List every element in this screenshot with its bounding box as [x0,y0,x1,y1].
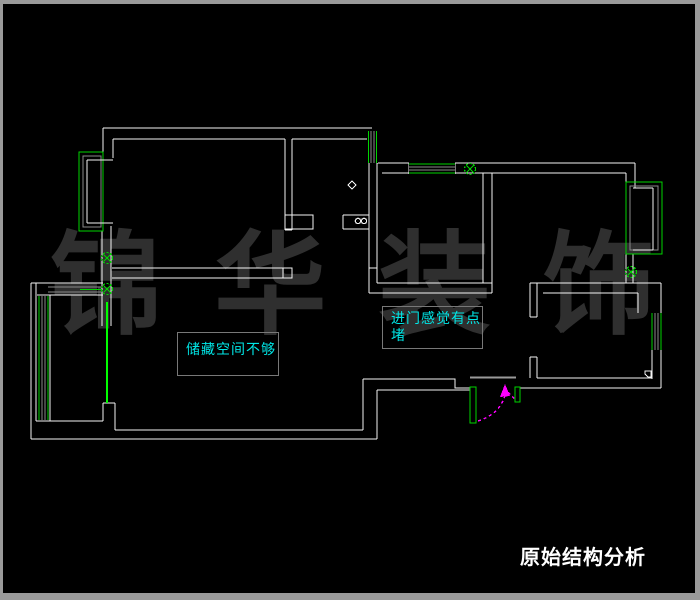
annotation-storage-note: 储藏空间不够 [177,332,279,376]
entry-level-marker-icon [645,371,651,377]
door-swing-arc [478,384,515,421]
annotation-entry-note: 进门感觉有点 堵 [382,306,483,349]
entry-door [470,378,520,424]
annotation-entry-text-line1: 进门感觉有点 [391,310,482,327]
kitchen-top-window [409,162,455,174]
bathroom-transition-window [367,130,378,163]
bay-window-right [626,182,662,254]
annotation-storage-text: 储藏空间不够 [186,341,276,357]
cad-canvas: 锦 华 装 饰 [0,0,700,600]
bathroom-diamond-icon [348,181,356,189]
drawing-title-label: 原始结构分析 [520,541,646,570]
balcony-west-window [39,296,48,420]
walls [31,128,661,439]
floor-plan [0,0,700,600]
door-swing-arrow [500,384,510,397]
bathroom-double-circle-icon [355,218,366,223]
hinge-marker-icon [626,267,637,278]
balcony-north-window [48,287,102,292]
annotation-entry-text-line2: 堵 [391,327,482,344]
bedroom2-east-window [652,313,661,350]
bay-window-left [79,152,113,231]
